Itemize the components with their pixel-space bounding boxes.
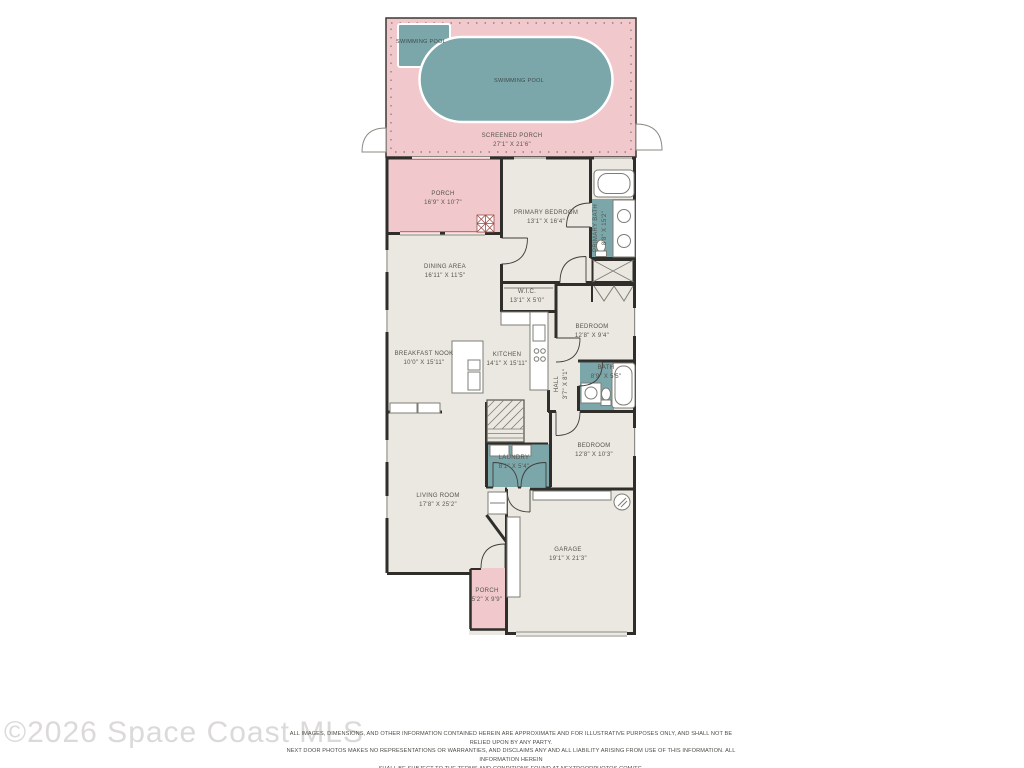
primary-sink-1 <box>618 210 631 223</box>
room-name: LIVING ROOM <box>416 492 459 501</box>
label-swimming-pool-small: SWIMMING POOL <box>396 39 446 45</box>
room-name: BEDROOM <box>575 323 609 332</box>
room-name: DINING AREA <box>424 263 466 272</box>
bath-sink <box>585 387 597 399</box>
grill-x-pattern <box>477 215 494 232</box>
room-dims: 13'1" X 16'4" <box>514 218 578 227</box>
room-dims: 10'0" X 15'11" <box>395 359 454 368</box>
disclaimer-line: SHALL BE SUBJECT TO THE TERMS AND CONDIT… <box>285 765 737 768</box>
bench-2 <box>418 403 440 413</box>
primary-sink-2 <box>618 235 631 248</box>
label-kitchen: KITCHEN 14'1" X 15'11" <box>487 351 528 369</box>
room-name: PORCH <box>424 190 462 199</box>
room-dims: 12'8" X 9'4" <box>575 332 609 341</box>
room-name: W.I.C. <box>510 288 544 297</box>
bath-toilet-tank <box>601 400 611 406</box>
room-name: BATH <box>591 364 622 373</box>
room-name: PRIMARY BEDROOM <box>514 209 578 218</box>
porch-door-right <box>636 124 662 150</box>
primary-tub <box>594 170 634 197</box>
room-dims: 14'1" X 15'11" <box>487 360 528 369</box>
room-name: SWIMMING POOL <box>396 39 446 45</box>
room-dims: 13'1" X 5'0" <box>510 297 544 306</box>
room-dims: 5'2" X 9'9" <box>472 596 503 605</box>
label-primary-bath: PRIMARY BATH 8'8" X 15'2" <box>592 204 610 252</box>
label-breakfast-nook: BREAKFAST NOOK 10'0" X 15'11" <box>395 350 454 368</box>
room-name: LAUNDRY <box>499 454 530 463</box>
room-name: PRIMARY BATH <box>592 204 601 252</box>
room-dims: 8'1" X 5'4" <box>499 463 530 472</box>
disclaimer-line: NEXT DOOR PHOTOS MAKES NO REPRESENTATION… <box>285 747 737 764</box>
label-porch-upper: PORCH 16'9" X 10'7" <box>424 190 462 208</box>
label-living-room: LIVING ROOM 17'8" X 25'2" <box>416 492 459 510</box>
label-garage: GARAGE 19'1" X 21'3" <box>549 546 587 564</box>
kitchen-counter-top <box>501 312 531 325</box>
disclaimer-text: ALL IMAGES, DIMENSIONS, AND OTHER INFORM… <box>285 730 737 768</box>
room-dims: 27'1" X 21'6" <box>482 141 543 150</box>
room-name: BEDROOM <box>575 442 613 451</box>
label-hall: HALL 3'7" X 8'1" <box>553 369 571 400</box>
room-name: SCREENED PORCH <box>482 132 543 141</box>
label-bath: BATH 8'9" X 5'5" <box>591 364 622 382</box>
room-name: BREAKFAST NOOK <box>395 350 454 359</box>
garage-shelf <box>507 517 520 597</box>
label-bedroom-mid: BEDROOM 12'8" X 9'4" <box>575 323 609 341</box>
label-screened-porch: SCREENED PORCH 27'1" X 21'6" <box>482 132 543 150</box>
room-dims: 17'8" X 25'2" <box>416 501 459 510</box>
stairs <box>487 400 524 442</box>
label-wic: W.I.C. 13'1" X 5'0" <box>510 288 544 306</box>
room-dims: 3'7" X 8'1" <box>562 369 571 400</box>
porch-door-left <box>362 128 386 152</box>
room-dims: 8'9" X 5'5" <box>591 373 622 382</box>
primary-vanity <box>613 200 635 257</box>
disclaimer-line: ALL IMAGES, DIMENSIONS, AND OTHER INFORM… <box>285 730 737 747</box>
room-dims: 16'11" X 11'5" <box>424 272 466 281</box>
room-dims: 16'9" X 10'7" <box>424 199 462 208</box>
floorplan-drawing <box>0 0 1024 768</box>
room-dims: 8'8" X 15'2" <box>601 204 610 252</box>
label-swimming-pool: SWIMMING POOL <box>494 78 544 84</box>
label-porch-lower: PORCH 5'2" X 9'9" <box>472 587 503 605</box>
label-primary-bedroom: PRIMARY BEDROOM 13'1" X 16'4" <box>514 209 578 227</box>
room-dims: 12'8" X 10'3" <box>575 451 613 460</box>
garage-storage <box>533 491 611 500</box>
room-name: HALL <box>553 369 562 400</box>
room-name: KITCHEN <box>487 351 528 360</box>
floorplan-page: SWIMMING POOL SWIMMING POOL SCREENED POR… <box>0 0 1024 768</box>
label-dining-area: DINING AREA 16'11" X 11'5" <box>424 263 466 281</box>
room-name: SWIMMING POOL <box>494 78 544 84</box>
bath-toilet <box>602 388 611 400</box>
label-bedroom-lower: BEDROOM 12'8" X 10'3" <box>575 442 613 460</box>
bench-1 <box>390 403 417 413</box>
room-name: GARAGE <box>549 546 587 555</box>
porch-grill <box>477 215 494 232</box>
room-name: PORCH <box>472 587 503 596</box>
label-laundry: LAUNDRY 8'1" X 5'4" <box>499 454 530 472</box>
room-dims: 19'1" X 21'3" <box>549 555 587 564</box>
